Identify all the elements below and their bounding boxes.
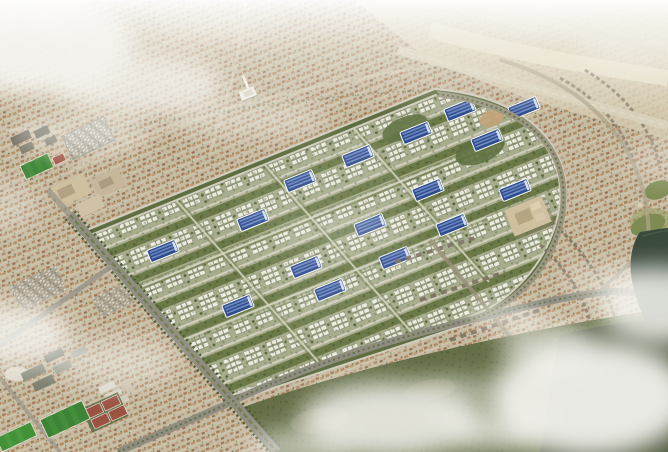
cloud (469, 304, 541, 330)
cloud (562, 266, 642, 298)
horizon-haze (0, 0, 668, 115)
aerial-render (0, 0, 668, 452)
cloud (280, 214, 400, 246)
cloud (420, 376, 500, 408)
cloud (50, 338, 180, 386)
aerial-render-canvas (0, 0, 668, 452)
cloud (10, 110, 150, 154)
